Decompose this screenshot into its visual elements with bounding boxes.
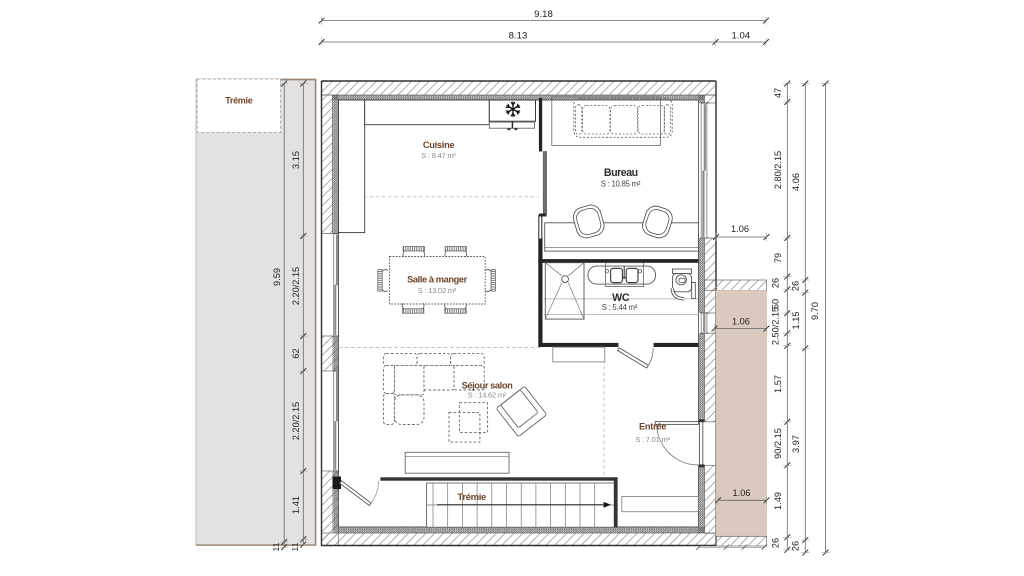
svg-text:90/2.15: 90/2.15 [773, 428, 783, 459]
svg-text:26: 26 [770, 538, 780, 548]
svg-text:3.15: 3.15 [291, 151, 301, 169]
svg-text:1.04: 1.04 [731, 30, 750, 41]
svg-text:Cuisine: Cuisine [423, 140, 455, 150]
svg-text:1.06: 1.06 [731, 224, 749, 234]
svg-text:4.06: 4.06 [791, 173, 801, 191]
svg-text:S : 10.85 m²: S : 10.85 m² [601, 179, 641, 188]
svg-text:62: 62 [291, 348, 301, 358]
svg-text:2.20/2.15: 2.20/2.15 [291, 402, 301, 440]
svg-text:9.18: 9.18 [534, 9, 553, 20]
svg-text:79: 79 [773, 253, 783, 263]
svg-text:11: 11 [271, 542, 281, 551]
svg-text:9.70: 9.70 [810, 302, 820, 320]
svg-text:Trémie: Trémie [225, 95, 253, 105]
svg-text:1.06: 1.06 [733, 488, 751, 498]
svg-text:S : 8.47 m²: S : 8.47 m² [421, 151, 456, 160]
svg-text:26: 26 [790, 541, 800, 551]
svg-text:1.49: 1.49 [773, 492, 783, 510]
svg-text:Bureau: Bureau [604, 167, 638, 179]
svg-text:S : 14.62 m²: S : 14.62 m² [468, 391, 507, 400]
svg-text:1.41: 1.41 [291, 496, 301, 514]
svg-text:Entrée: Entrée [639, 421, 666, 431]
svg-text:8.13: 8.13 [509, 30, 528, 41]
svg-text:Trémie: Trémie [457, 492, 486, 503]
svg-text:2.50/2.15: 2.50/2.15 [770, 307, 780, 345]
svg-text:2.80/2.15: 2.80/2.15 [773, 151, 783, 189]
svg-text:11: 11 [290, 542, 300, 551]
svg-text:3.97: 3.97 [791, 435, 801, 453]
svg-text:S : 5.44 m²: S : 5.44 m² [602, 303, 638, 312]
svg-text:26: 26 [790, 281, 800, 291]
svg-text:S : 7.01 m²: S : 7.01 m² [635, 435, 670, 444]
svg-text:2.20/2.15: 2.20/2.15 [291, 267, 301, 305]
svg-text:Séjour salon: Séjour salon [462, 380, 513, 390]
svg-text:26: 26 [770, 278, 780, 288]
svg-text:Salle à manger: Salle à manger [407, 275, 468, 285]
svg-text:1.06: 1.06 [732, 317, 750, 327]
svg-text:1.57: 1.57 [773, 375, 783, 393]
svg-text:1.15: 1.15 [791, 312, 801, 330]
svg-text:S : 13.02 m²: S : 13.02 m² [418, 286, 457, 295]
svg-text:47: 47 [773, 88, 783, 98]
svg-text:9.59: 9.59 [272, 268, 282, 286]
